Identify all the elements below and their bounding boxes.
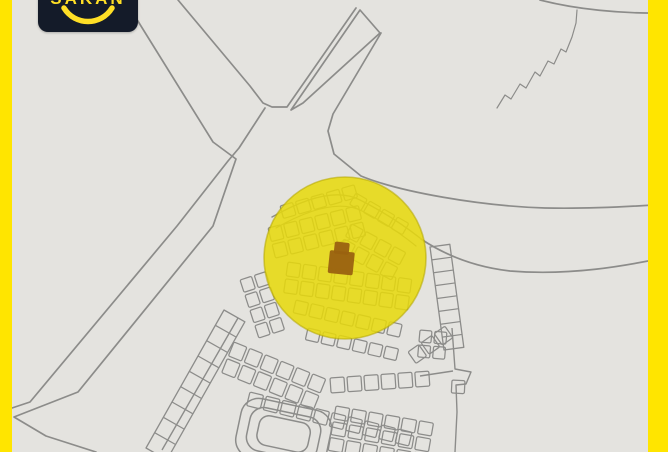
block-east-boundary	[452, 328, 471, 452]
map-screenshot: SAKAN	[0, 0, 668, 452]
plot-grid	[451, 380, 465, 394]
road-east-south-edge	[421, 239, 668, 272]
map-canvas[interactable]	[0, 0, 668, 452]
brand-logo-badge: SAKAN	[38, 0, 138, 32]
plot-grid	[330, 371, 430, 393]
street-along-road	[162, 318, 238, 450]
smile-arc-icon	[60, 5, 116, 29]
road-median-strip	[291, 10, 380, 110]
frame-accent-bar-right	[648, 0, 668, 452]
frame-accent-bar-left	[0, 0, 12, 452]
road-east-north-edge	[328, 33, 668, 208]
wadi-squiggle	[497, 10, 577, 108]
road-west-edge	[14, 18, 236, 452]
plot-grid	[222, 342, 326, 410]
